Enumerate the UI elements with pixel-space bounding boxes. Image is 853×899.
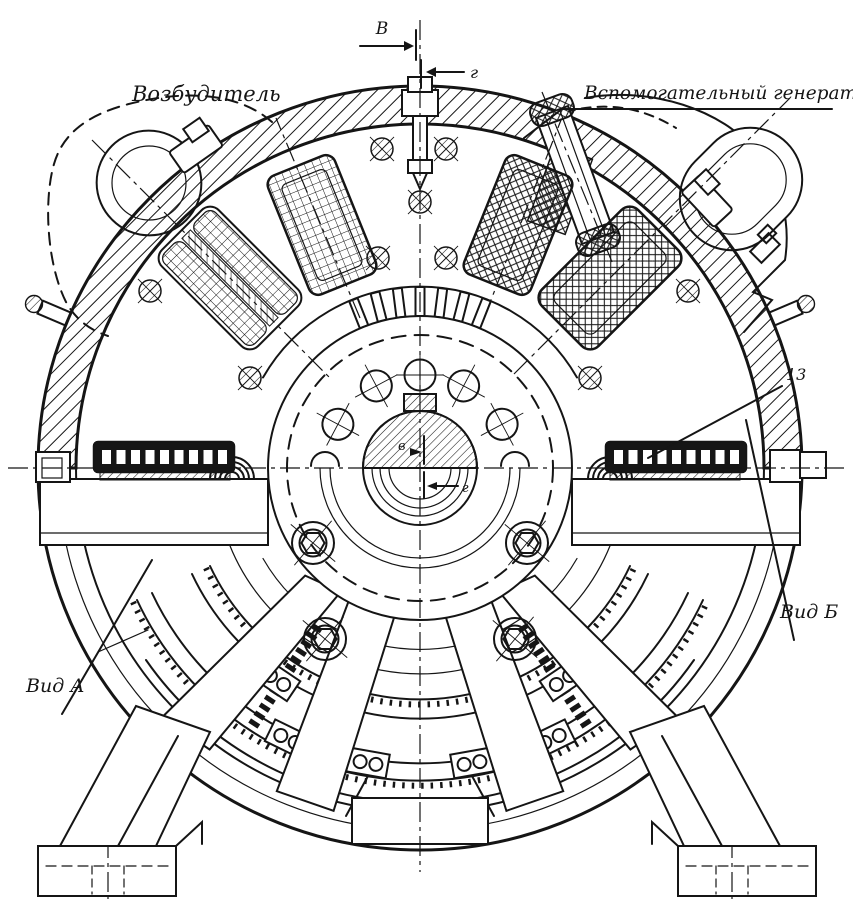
section-letter-b-center: в [398, 439, 406, 454]
left-pole-band [94, 442, 234, 480]
generator-cross-section-drawing: В г в г Возбудитель Вспомогательный гене… [0, 0, 853, 899]
section-letter-g-center: г [462, 481, 469, 496]
section-letter-g-top: г [470, 63, 478, 82]
exciter-label: Возбудитель [131, 82, 281, 106]
right-pole-band [606, 442, 746, 480]
part-13-callout: 13 [786, 365, 806, 384]
aux-generator-label: Вспомогательный генератор [583, 83, 853, 104]
left-foot [38, 706, 210, 899]
right-foot [630, 706, 816, 899]
section-letter-b-top: В [375, 19, 389, 39]
engineering-drawing-page: В г в г Возбудитель Вспомогательный гене… [0, 0, 853, 899]
view-a-label: Вид А [25, 675, 85, 697]
